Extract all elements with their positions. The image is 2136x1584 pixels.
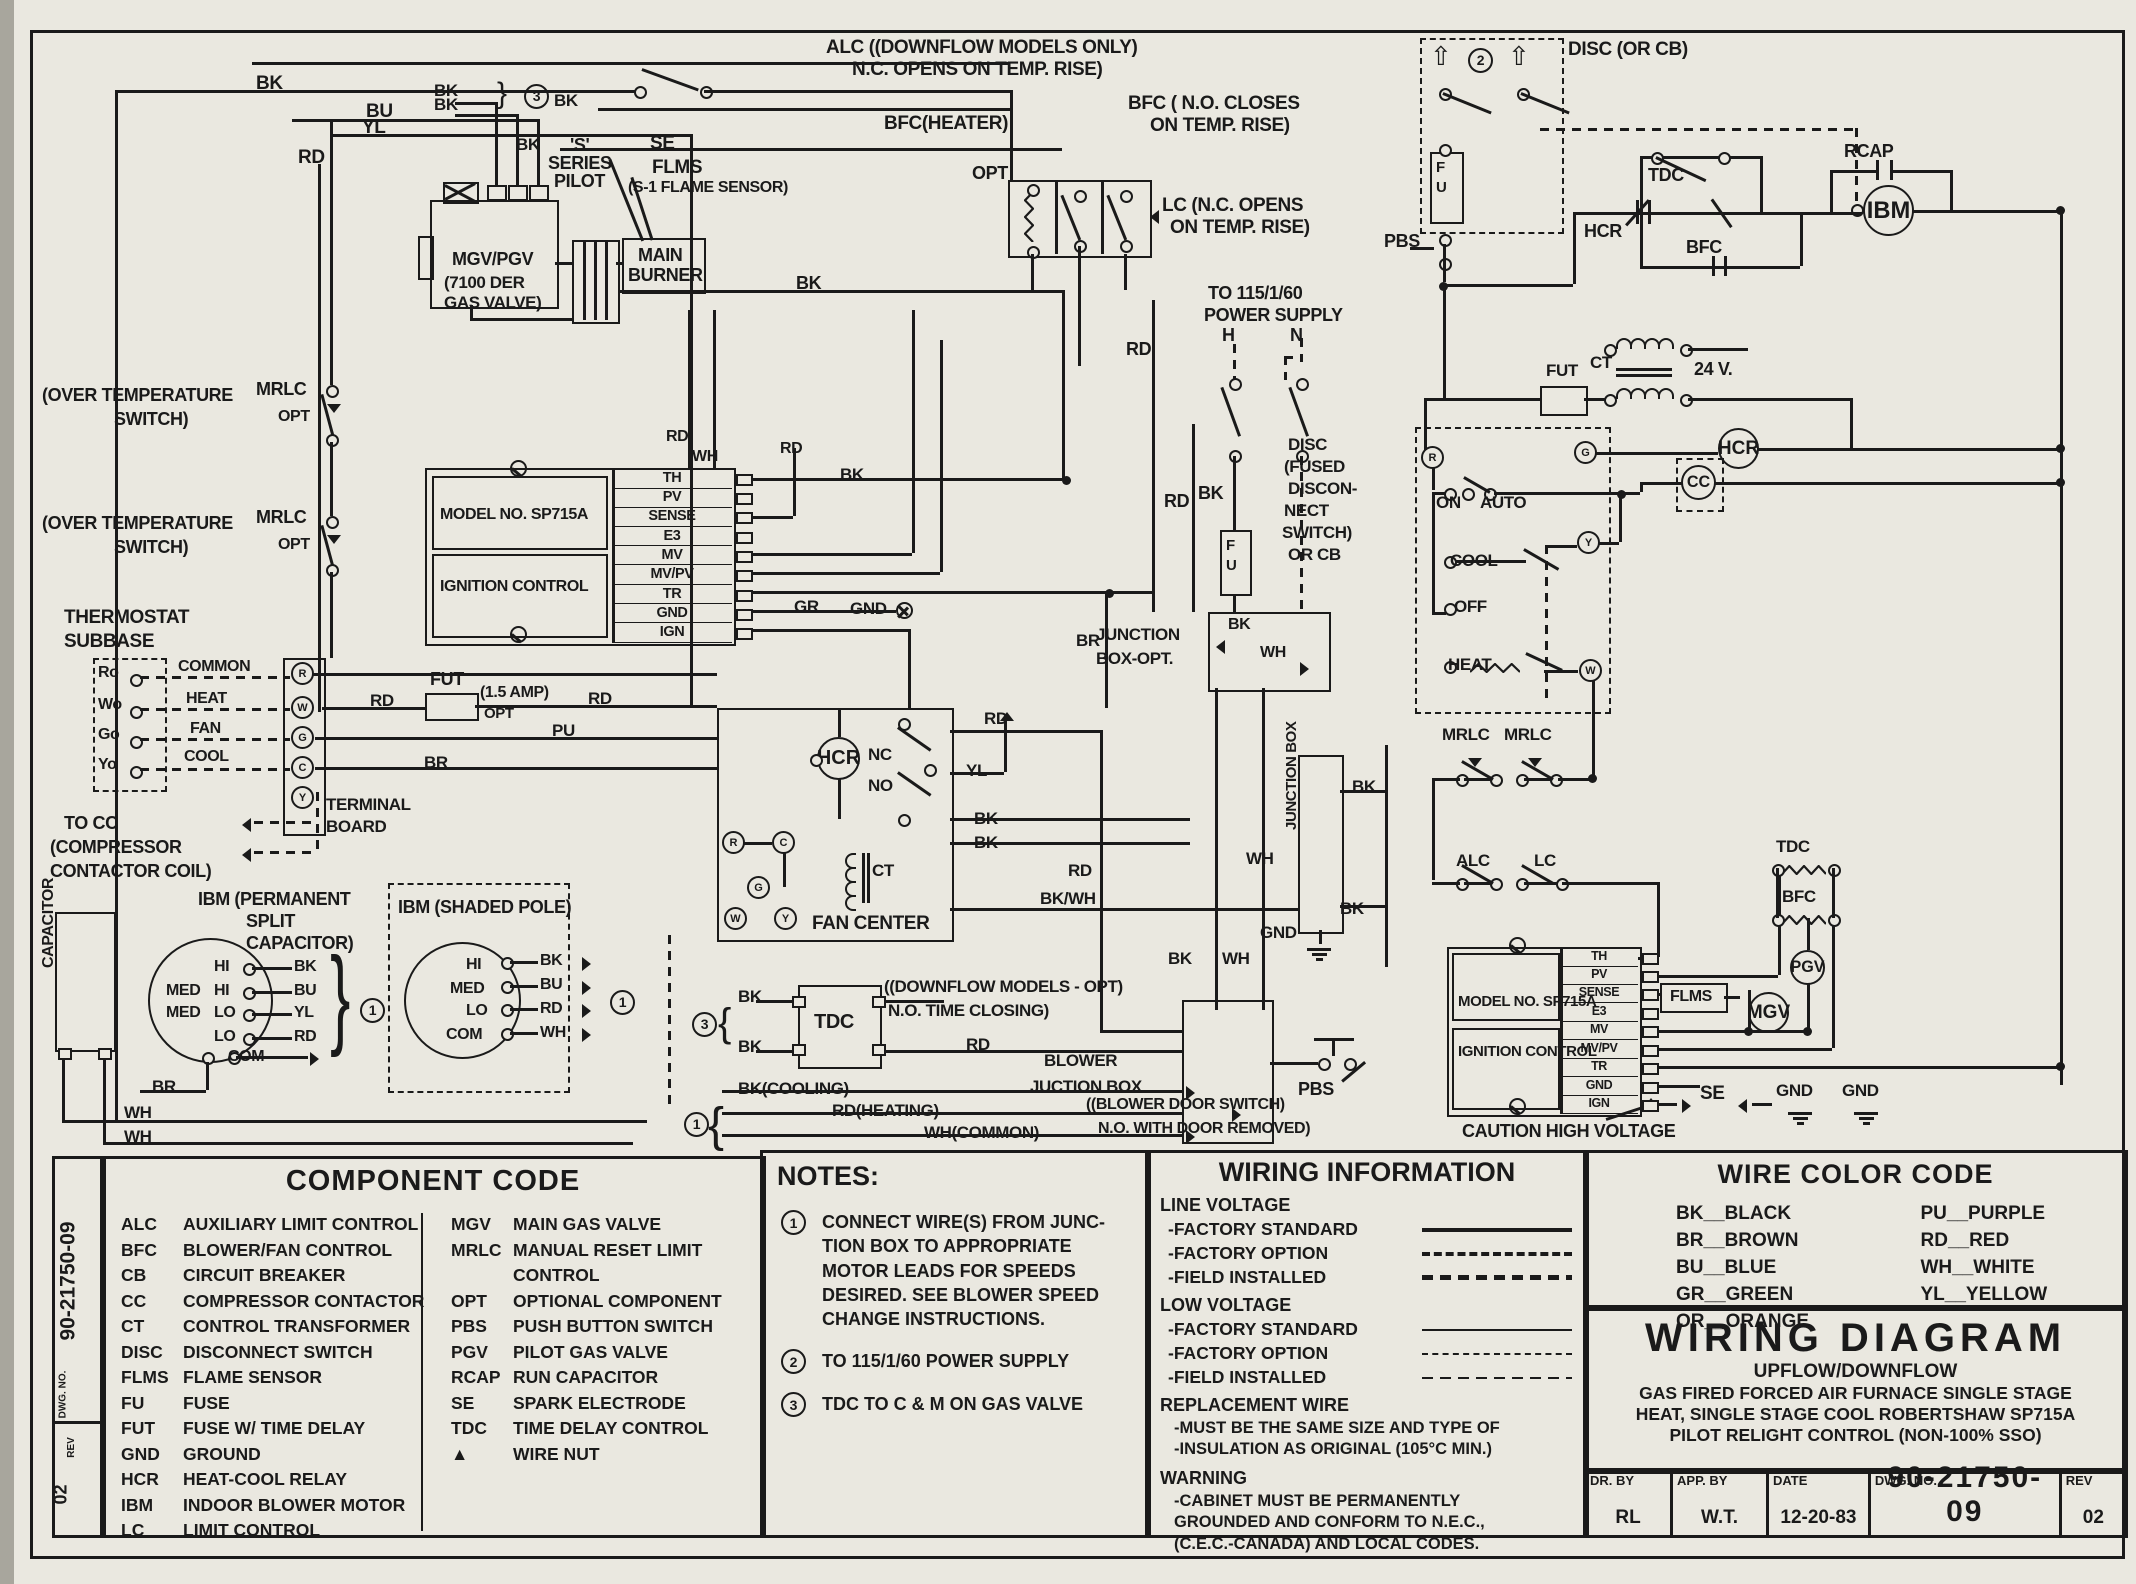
circle-label-HCR: HCR [1718, 428, 1759, 469]
code: TDC [451, 1416, 513, 1442]
arrow-icon [1216, 640, 1225, 654]
label-bfch: BFC(HEATER) [884, 114, 1008, 135]
label-ntc: N.O. TIME CLOSING) [888, 1002, 1049, 1020]
label-bk: BK [1352, 778, 1376, 796]
wire-dashed [1545, 545, 1548, 705]
label-disc3: DISCON- [1288, 480, 1357, 498]
wire-color-entry: YL__YELLOW [1921, 1281, 2126, 1308]
wiring-info-lines: -MUST BE THE SAME SIZE AND TYPE OF -INSU… [1174, 1418, 1586, 1461]
wire [1385, 745, 1388, 967]
wire [1890, 170, 1950, 173]
wire [560, 148, 1062, 151]
terminal-pad [1642, 1063, 1659, 1075]
wire [1913, 210, 2060, 213]
pad [508, 185, 528, 201]
wire [1192, 424, 1195, 612]
component-box [418, 236, 434, 280]
wiring-info-row: -FACTORY OPTION [1168, 1243, 1586, 1264]
label-alc: ALC [1456, 852, 1490, 870]
component-code-row: CBCIRCUIT BREAKER [121, 1263, 433, 1289]
row-label: -FACTORY STANDARD [1168, 1319, 1358, 1340]
wire [793, 448, 796, 516]
wire [1432, 492, 1435, 614]
note-item: 2TO 115/1/60 POWER SUPPLY [781, 1349, 1138, 1374]
coil-icon [1658, 388, 1674, 399]
terminal-pad [736, 551, 753, 563]
label-rd: RD [1126, 340, 1151, 359]
wire [318, 164, 321, 712]
wire [1651, 1048, 1832, 1051]
wiring-info-heading: LINE VOLTAGE [1160, 1195, 1586, 1216]
description: DISCONNECT SWITCH [183, 1340, 373, 1366]
ground-icon [1316, 958, 1323, 961]
wire-dashed [1284, 356, 1287, 380]
arrow-icon [310, 1052, 319, 1066]
component-box [1540, 386, 1588, 416]
label-se: SE [650, 134, 675, 155]
component-code-row: FUFUSE [121, 1391, 433, 1417]
wire [940, 340, 943, 572]
line-style-sample [1422, 1228, 1572, 1232]
terminal-pad [1642, 953, 1659, 965]
description: AUXILIARY LIMIT CONTROL [183, 1212, 418, 1238]
code: FLMS [121, 1365, 183, 1391]
right-ign-terminal-mv-pv: MV/PV [1560, 1042, 1638, 1056]
wire [1233, 594, 1236, 612]
component-code-row: PBSPUSH BUTTON SWITCH [451, 1314, 763, 1340]
terminal [898, 814, 911, 827]
wire [1619, 492, 1622, 542]
wire-dashed [1233, 344, 1236, 380]
wire [1616, 374, 1672, 377]
label-cool: COOL [1450, 552, 1498, 570]
label-ts2: SUBBASE [64, 632, 154, 653]
wiring-information-panel: WIRING INFORMATION LINE VOLTAGE-FACTORY … [1145, 1150, 1589, 1538]
code: BFC [121, 1238, 183, 1264]
wire [292, 119, 537, 122]
label-mgv3: GAS VALVE) [444, 294, 541, 312]
label-br: BR [152, 1078, 176, 1096]
label-ibm1: IBM (PERMANENT [198, 890, 350, 909]
terminal [1027, 184, 1040, 197]
label-ps2: POWER SUPPLY [1204, 306, 1343, 325]
code: GND [121, 1442, 183, 1468]
wire [1657, 882, 1660, 957]
wire-dashed [1855, 128, 1858, 208]
component-code-panel: COMPONENT CODE ALCAUXILIARY LIMIT CONTRO… [100, 1156, 766, 1538]
circle-terminal [148, 938, 273, 1063]
component-code-row: CCCOMPRESSOR CONTACTOR [121, 1289, 433, 1315]
label-alc1: ALC ((DOWNFLOW MODELS ONLY) [826, 38, 1137, 59]
wiring-info-heading: WARNING [1160, 1468, 1586, 1489]
terminal-pad [736, 609, 753, 621]
label-yl: YL [362, 118, 385, 139]
label-u: U [1436, 180, 1446, 196]
wire [884, 1050, 1182, 1053]
label-com: COM [446, 1026, 482, 1043]
circle-label-R: R [722, 831, 745, 854]
wire [1010, 90, 1013, 182]
wire-color-entry: RD__RED [1921, 1227, 2126, 1254]
wire-color-entry: WH__WHITE [1921, 1254, 2126, 1281]
field-value: 02 [2062, 1507, 2125, 1529]
wire [838, 779, 841, 819]
label-bk: BK [256, 74, 283, 95]
description: WIRE NUT [513, 1442, 600, 1468]
label-common: COMMON [178, 658, 250, 675]
wire [115, 90, 118, 1120]
label-heat: HEAT [1448, 656, 1491, 674]
right-ign-terminal-th: TH [1560, 950, 1638, 964]
wire [1124, 254, 1127, 290]
arrow-icon [242, 818, 251, 832]
arrow-icon [1738, 1099, 1747, 1113]
left-ign-terminal-pv: PV [612, 490, 732, 506]
label-fanc: FAN CENTER [812, 914, 929, 935]
ground-icon [1793, 1117, 1808, 1120]
description: CONTROL TRANSFORMER [183, 1314, 410, 1340]
circle-label-Y: Y [774, 907, 797, 930]
label-rd: RD [298, 148, 325, 169]
wire [1424, 398, 1443, 401]
wire [1758, 448, 2060, 451]
terminal [634, 86, 647, 99]
right-ign-terminal-ign: IGN [1560, 1097, 1638, 1111]
label-flms_sub: (S-1 FLAME SENSOR) [628, 179, 788, 196]
component-code-row: LCLIMIT CONTROL [121, 1518, 433, 1544]
label-rd: RD [666, 428, 688, 445]
label-bfc2: ON TEMP. RISE) [1150, 116, 1290, 137]
label-caution: CAUTION HIGH VOLTAGE [1462, 1122, 1675, 1141]
wiring-info-row: -FIELD INSTALLED [1168, 1267, 1586, 1288]
component-code-row: FUTFUSE W/ TIME DELAY [121, 1416, 433, 1442]
circle-label-G: G [747, 876, 770, 899]
wire-color-entry: BK__BLACK [1676, 1200, 1881, 1227]
label-bk: BK [974, 810, 998, 828]
label-s3: PILOT [554, 172, 605, 191]
left-ign-terminal-sense: SENSE [612, 509, 732, 525]
wire [1270, 1062, 1318, 1065]
wire [688, 310, 691, 468]
field-rev: REV02 [2062, 1471, 2125, 1535]
label-flms: FLMS [1670, 988, 1712, 1005]
label-plug: ⇧ [1430, 42, 1451, 70]
code: LC [121, 1518, 183, 1544]
component-code-row: IBMINDOOR BLOWER MOTOR [121, 1493, 433, 1519]
label-gr: GR [794, 598, 819, 616]
label-on: ON [1436, 494, 1461, 512]
description: OPTIONAL COMPONENT [513, 1289, 722, 1315]
label-mrlc: MRLC [256, 508, 306, 527]
component-code-row: OPTOPTIONAL COMPONENT [451, 1289, 763, 1315]
field-value: 90-21750-09 [1871, 1461, 2059, 1529]
wire [330, 572, 333, 658]
wire [1432, 882, 1460, 885]
wire [1712, 256, 1715, 276]
label-ot1: (OVER TEMPERATURE [42, 386, 233, 405]
wire [1558, 778, 1592, 781]
arrow-icon [327, 404, 341, 413]
wire [1616, 368, 1672, 371]
label-u: U [1226, 558, 1236, 574]
note-number-icon: 2 [781, 1349, 806, 1374]
wire [950, 730, 1100, 733]
wire [746, 629, 908, 632]
label-wh: WH [1260, 644, 1286, 661]
wire [746, 516, 793, 519]
wiring-information-title: WIRING INFORMATION [1148, 1157, 1586, 1188]
field-label: DATE [1773, 1473, 1807, 1488]
note-text: CONNECT WIRE(S) FROM JUNC- TION BOX TO A… [822, 1210, 1105, 1331]
line-style-sample [1422, 1252, 1572, 1256]
label-bkwh: BK/WH [1040, 890, 1096, 908]
label-tocc2: (COMPRESSOR [50, 838, 182, 857]
code: CT [121, 1314, 183, 1340]
field-value: W.T. [1673, 1507, 1766, 1529]
ground-icon [1307, 948, 1331, 951]
wire-color-entry: GR__GREEN [1676, 1281, 1881, 1308]
wire [1443, 244, 1446, 282]
wire [1573, 212, 1862, 215]
wire [950, 908, 1298, 911]
resistor-icon [1782, 912, 1826, 922]
wire [1950, 170, 1953, 212]
wire [1850, 398, 1853, 450]
field-date: DATE12-20-83 [1769, 1471, 1871, 1535]
component-box [1452, 953, 1560, 1021]
wire [1062, 290, 1065, 480]
ground-icon [1797, 1122, 1804, 1125]
field-dwg-no-: DWG. NO.90-21750-09 [1871, 1471, 2062, 1535]
wire [704, 90, 1010, 93]
code: MRLC [451, 1238, 513, 1289]
label-ibm2: SPLIT [246, 912, 295, 931]
label-ot2: SWITCH) [114, 410, 188, 429]
terminal-pad [736, 512, 753, 524]
label-go: Go [98, 726, 119, 743]
wire [1651, 1066, 2060, 1069]
wire [1078, 246, 1081, 366]
label-ro: Ro [98, 664, 119, 681]
label-rd: RD [1164, 492, 1189, 511]
wire [330, 442, 333, 516]
junction-dot [2056, 478, 2065, 487]
label-pu: PU [552, 722, 575, 740]
terminal [1462, 488, 1475, 501]
label-se: SE [1700, 1084, 1725, 1105]
field-label: REV [2066, 1473, 2093, 1488]
label-m1: 1 [360, 998, 385, 1023]
description: FUSE [183, 1391, 230, 1417]
title-subtitle-line: PILOT RELIGHT CONTROL (NON-100% SSO) [1586, 1425, 2125, 1446]
wire-color-entry: BR__BROWN [1676, 1227, 1881, 1254]
right-ign-terminal-tr: TR [1560, 1060, 1638, 1074]
label-br: BR [424, 754, 448, 772]
label-no: NO [868, 777, 893, 795]
coil-icon [1658, 338, 1674, 349]
component-code-row: GNDGROUND [121, 1442, 433, 1468]
component-code-title: COMPONENT CODE [103, 1165, 763, 1198]
line-style-sample [1422, 1329, 1572, 1331]
label-bk: BK [1168, 950, 1192, 968]
row-label: -FACTORY OPTION [1168, 1243, 1328, 1264]
wire [912, 310, 915, 553]
wire-dashed [254, 821, 316, 824]
code: ALC [121, 1212, 183, 1238]
wire [1573, 212, 1576, 284]
wire [555, 262, 572, 265]
circle-label-HCR: HCR [817, 737, 860, 780]
wire [1432, 468, 1435, 490]
label-fut: FUT [430, 670, 464, 689]
note-number-icon: 3 [781, 1392, 806, 1417]
title-block: WIRING DIAGRAM UPFLOW/DOWNFLOWGAS FIRED … [1583, 1305, 2128, 1474]
arrow-icon [582, 981, 591, 995]
label-ps1: TO 115/1/60 [1208, 284, 1302, 303]
wire [1800, 212, 1803, 266]
label-yl: YL [966, 762, 987, 780]
pad [529, 185, 549, 201]
terminal-pad [1642, 1008, 1659, 1020]
wire [1724, 256, 1727, 276]
wire [1524, 778, 1552, 781]
wire [1319, 930, 1322, 944]
circle-label-C: C [291, 756, 314, 779]
wire [510, 985, 538, 988]
description: PILOT GAS VALVE [513, 1340, 668, 1366]
strip-rev-no: 02 [51, 1484, 72, 1504]
label-bk: BK [840, 466, 864, 484]
left-ign-terminal-ign: IGN [612, 625, 732, 641]
wire [330, 119, 333, 385]
label-bds1: ((BLOWER DOOR SWITCH) [1086, 1096, 1285, 1113]
wire [1640, 156, 1643, 212]
label-whcom: WH(COMMON) [924, 1124, 1039, 1142]
description: LIMIT CONTROL [183, 1518, 320, 1544]
wire [1640, 266, 1800, 269]
description: FLAME SENSOR [183, 1365, 322, 1391]
circle-label-MGVC: MGV [1748, 992, 1789, 1033]
ground-icon [1312, 953, 1327, 956]
resistor-icon [1782, 862, 1826, 872]
label-bu: BU [294, 982, 316, 999]
code: PBS [451, 1314, 513, 1340]
label-off: OFF [1454, 598, 1487, 616]
label-mrlc: MRLC [256, 380, 306, 399]
circle-label-Y: Y [1577, 531, 1600, 554]
label-main: MAIN [638, 246, 682, 265]
wire [1152, 300, 1155, 612]
wiring-info-row: -FIELD INSTALLED [1168, 1367, 1586, 1388]
label-bkcool: BK(COOLING) [738, 1080, 849, 1098]
wire [908, 629, 911, 708]
label-wh: WH [124, 1128, 152, 1146]
terminal [326, 385, 339, 398]
component-box [425, 693, 479, 721]
description: CIRCUIT BREAKER [183, 1263, 345, 1289]
right-ign-terminal-e3: E3 [1560, 1005, 1638, 1019]
wire [1101, 180, 1104, 254]
label-gnd: GND [850, 600, 887, 618]
junction-dot [1062, 476, 1071, 485]
divider [421, 1213, 423, 1531]
component-code-row: ▲WIRE NUT [451, 1442, 763, 1468]
label-disccb: DISC (OR CB) [1568, 40, 1688, 61]
label-bk: BK [1340, 900, 1364, 918]
wire [495, 102, 498, 186]
label-med: MED [166, 1004, 200, 1021]
wire-color-code-panel: WIRE COLOR CODE BK__BLACKBR__BROWNBU__BL… [1583, 1150, 2128, 1311]
arrow-icon [1468, 758, 1482, 767]
label-mgv1: MGV/PGV [452, 250, 533, 269]
label-opt: OPT [278, 536, 310, 553]
label-rd: RD [540, 1000, 562, 1017]
junction-dot [2056, 1062, 2065, 1071]
dashed-box [1676, 458, 1724, 512]
wire [1752, 1103, 1772, 1106]
wire [746, 572, 940, 575]
label-gnd: GND [1260, 924, 1297, 942]
label-auto: AUTO [1480, 494, 1526, 512]
wire [1443, 284, 1573, 287]
code: CB [121, 1263, 183, 1289]
label-brace_l: { [718, 1002, 731, 1045]
label-pbs: PBS [1298, 1080, 1334, 1099]
wire [103, 1142, 633, 1145]
wire [1432, 778, 1435, 880]
wire-dashed [1540, 128, 1855, 131]
ground-icon [1863, 1122, 1870, 1125]
label-med: MED [450, 980, 484, 997]
label-ot2: SWITCH) [114, 538, 188, 557]
wire [1599, 542, 1619, 545]
wire [746, 591, 1152, 594]
label-blw1: BLOWER [1044, 1052, 1117, 1070]
label-m3: 3 [692, 1012, 717, 1037]
component-code-row: PGVPILOT GAS VALVE [451, 1340, 763, 1366]
strip-rev-label: REV [66, 1437, 77, 1458]
junction-dot [1588, 774, 1597, 783]
wire [1640, 212, 1643, 266]
wire [1443, 398, 1540, 401]
wire [1807, 918, 1810, 950]
code: PGV [451, 1340, 513, 1366]
terminal [1120, 190, 1133, 203]
label-opt: OPT [972, 164, 1008, 183]
description: INDOOR BLOWER MOTOR [183, 1493, 405, 1519]
wire [1651, 1030, 1748, 1033]
circle-label-W: W [724, 907, 747, 930]
field-value: 12-20-83 [1769, 1507, 1868, 1529]
terminal-pad [1642, 1082, 1659, 1094]
label-brace_r: } [497, 78, 507, 110]
note-item: 1CONNECT WIRE(S) FROM JUNC- TION BOX TO … [781, 1210, 1138, 1331]
label-ignc: IGNITION CONTROL [440, 578, 588, 595]
label-tb2: BOARD [326, 818, 386, 836]
label-jbv: JUNCTION BOX [1284, 721, 1300, 830]
wire [605, 240, 608, 320]
wire [783, 853, 786, 887]
label-rd: RD [780, 440, 802, 457]
label-nc: NC [868, 746, 892, 764]
strip-dwg-no: 90-21750-09 [57, 1221, 81, 1340]
component-code-row: MRLCMANUAL RESET LIMIT CONTROL [451, 1238, 763, 1289]
label-bk: BK [738, 1038, 762, 1056]
right-ign-terminal-pv: PV [1560, 968, 1638, 982]
label-capv: CAPACITOR [40, 878, 57, 968]
label-flms: FLMS [652, 158, 702, 179]
code: DISC [121, 1340, 183, 1366]
